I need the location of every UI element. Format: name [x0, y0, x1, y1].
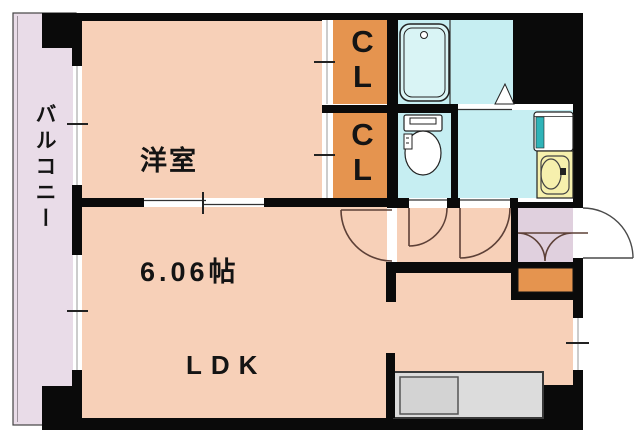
- wall-toilet-washroom: [451, 113, 458, 198]
- wall-western-ldk: [264, 198, 387, 207]
- wall-stub-kitchen: [386, 353, 395, 418]
- wall-western-ldk: [75, 198, 144, 207]
- wall-left-segment: [72, 370, 82, 430]
- wall-bath-bottom: [387, 104, 460, 113]
- floor-plan: 洋室 6.06帖 LDK 11帖 バルコニー CL CL: [0, 0, 640, 437]
- wall-left-segment: [72, 20, 82, 66]
- bathtub-icon: [400, 24, 449, 101]
- wall-right-segment: [573, 105, 583, 208]
- wall-entrance-top: [511, 202, 583, 208]
- wall-stub-hall: [386, 262, 396, 302]
- floor-plan-drawing: [0, 0, 640, 437]
- wall-hall-top: [447, 198, 460, 208]
- western-room-name: 洋室: [140, 143, 240, 180]
- wall-top: [42, 13, 583, 21]
- closet-lower-label: CL: [344, 117, 380, 197]
- ldk-label: LDK 11帖: [186, 276, 266, 437]
- wall-between-closets: [322, 105, 387, 113]
- laundry-unit-icon: [537, 151, 573, 198]
- wall-hall-bottom: [386, 262, 517, 273]
- ldk-name: LDK: [186, 348, 266, 384]
- wall-mass-top-right: [513, 13, 583, 105]
- toilet-icon: [404, 115, 442, 175]
- washbasin-icon: [534, 112, 573, 151]
- wall-mass-kitchen-right: [543, 385, 583, 430]
- ldk-hall-doorway: [387, 208, 397, 262]
- balcony-label: バルコニー: [29, 103, 59, 333]
- wall-bottom: [42, 418, 583, 430]
- wall-left-segment: [72, 185, 82, 255]
- front-door-swing-icon: [583, 208, 633, 258]
- closet-upper-label: CL: [344, 24, 380, 104]
- shoe-cabinet: [518, 268, 573, 292]
- kitchen-sink-icon: [400, 377, 458, 414]
- wall-hall-top: [398, 198, 409, 208]
